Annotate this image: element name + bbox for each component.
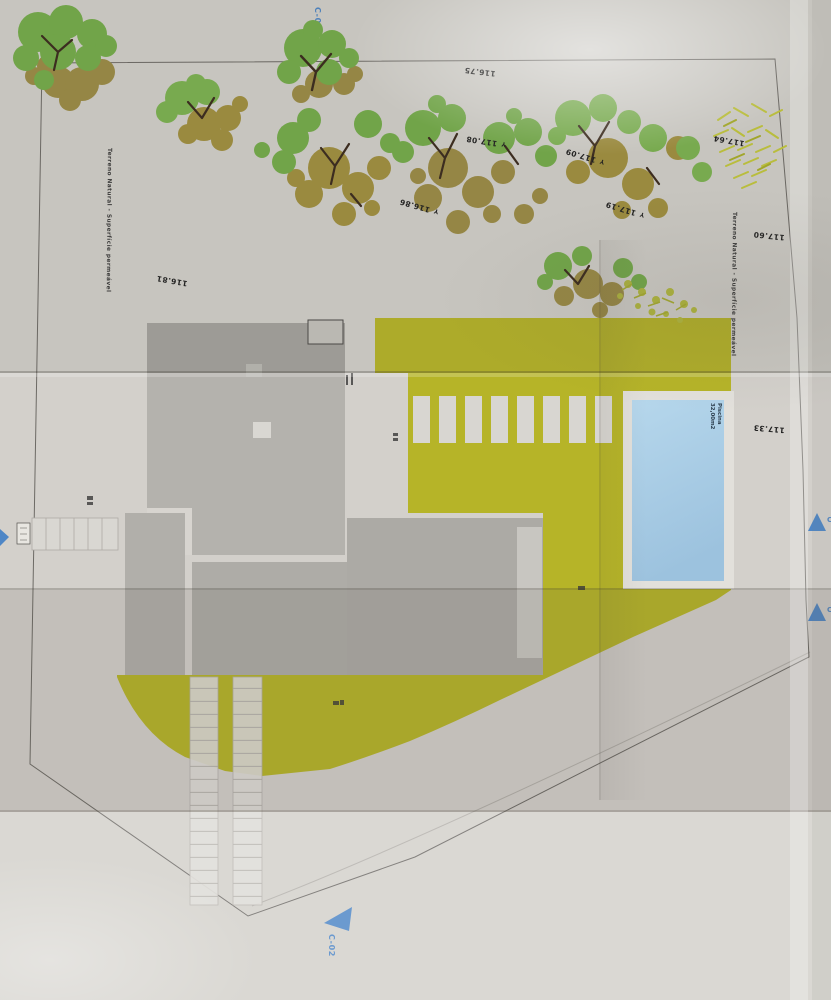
path-ladder-south-1	[190, 677, 218, 905]
tree-hatched	[714, 104, 786, 188]
tree	[156, 74, 248, 151]
building-annex-outline	[308, 320, 343, 344]
elevation-label: Y 116.86	[398, 197, 439, 217]
section-marker-bottom: C-02	[327, 934, 336, 957]
building-lower-slab	[192, 562, 543, 675]
building-east-wing	[347, 518, 543, 675]
elevation-label: Y 117.08	[465, 134, 506, 149]
survey-marker-icon: Y	[639, 210, 646, 218]
pergola-slats	[413, 396, 612, 443]
section-marker-right-lower: C	[827, 606, 831, 614]
fold-overlay	[0, 0, 831, 1000]
section-arrow-right-upper-icon	[808, 513, 826, 531]
pool-label: Piscina 32,00m2	[707, 403, 722, 429]
section-arrow-bottom-icon	[324, 907, 352, 931]
section-arrow-right-lower-icon	[808, 603, 826, 621]
section-arrow-top-icon	[309, 39, 330, 56]
boundary-line	[30, 59, 810, 916]
survey-marker-icon: Y	[433, 207, 439, 215]
building-upper-block	[147, 323, 345, 373]
terrain-yellow	[117, 318, 731, 776]
elevation-label: Y 117.19	[605, 200, 646, 220]
tree	[392, 95, 557, 234]
tree	[537, 246, 647, 318]
path-ladder-west	[32, 518, 118, 550]
tree-sprig	[617, 280, 697, 323]
elevation-label: 116.75	[464, 66, 496, 79]
path-ladder-south-2	[233, 677, 262, 905]
elevation-label: Y 117.09	[565, 147, 606, 167]
section-marker-top: C-02	[313, 7, 322, 30]
building-terrace-strip	[517, 527, 542, 658]
section-markers-layer	[0, 0, 831, 1000]
elevation-label: 116.81	[156, 274, 188, 288]
survey-marker-icon: Y	[501, 140, 507, 148]
section-arrow-west-icon	[0, 529, 9, 546]
site-plan-photo: C-02	[0, 0, 831, 1000]
elevation-label: 117.64	[713, 134, 745, 148]
plan-graphics	[0, 0, 831, 1000]
tree	[254, 108, 400, 226]
building-left-wing	[125, 513, 185, 675]
micro-annotations	[87, 373, 585, 705]
tree	[277, 20, 363, 103]
dimension-box	[0, 523, 30, 546]
trees-layer	[0, 0, 831, 1000]
elevation-label: 117.33	[753, 423, 785, 435]
section-marker-right-upper: C	[827, 516, 831, 524]
survey-marker-icon: Y	[599, 157, 606, 165]
building-courtyard	[253, 422, 271, 438]
permeable-note-left: Terreno Natural - Superfície permeável	[105, 148, 112, 293]
path-ladders	[32, 518, 262, 905]
building	[125, 320, 543, 675]
elevation-label: 117.60	[753, 230, 785, 242]
tree	[13, 5, 117, 111]
permeable-note-right: Terreno Natural - Superfície permeável	[730, 212, 737, 357]
